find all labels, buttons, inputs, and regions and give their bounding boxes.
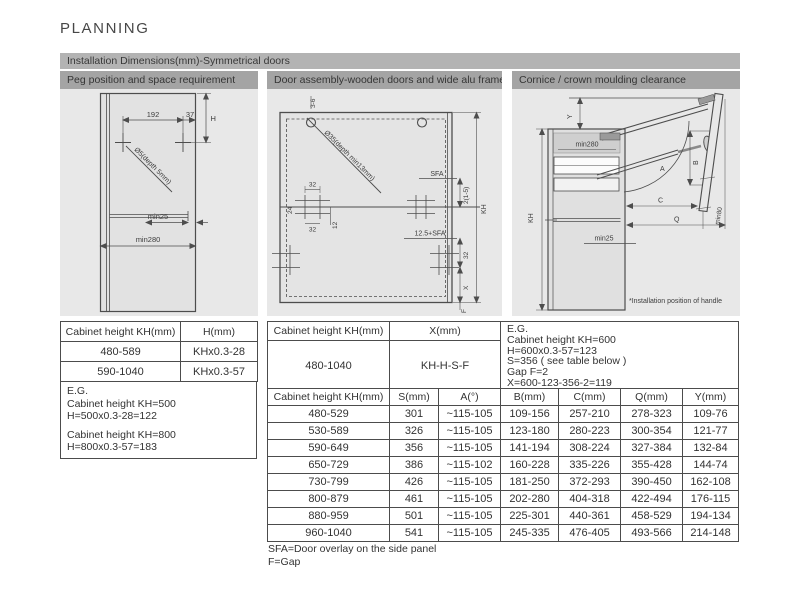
panel-header-door-assembly: Door assembly-wooden doors and wide alu … bbox=[267, 71, 502, 89]
table-header-row: Cabinet height KH(mm) H(mm) bbox=[61, 322, 258, 342]
side-panel-outline bbox=[101, 94, 196, 312]
cell: 160-228 bbox=[501, 457, 559, 474]
cell: 326 bbox=[390, 423, 439, 440]
table-row: 480-589 KHx0.3-28 bbox=[61, 342, 258, 362]
cell: 730-799 bbox=[268, 474, 390, 491]
cell: ~115-105 bbox=[439, 508, 501, 525]
dim-b-label: B bbox=[693, 160, 700, 165]
cell: 109-156 bbox=[501, 406, 559, 423]
dim-q-label: Q bbox=[674, 217, 680, 224]
cell: 355-428 bbox=[621, 457, 683, 474]
example-line: H=800x0.3-57=183 bbox=[67, 441, 250, 454]
cell: 257-210 bbox=[559, 406, 621, 423]
cell: 245-335 bbox=[501, 525, 559, 542]
dim-32-top-label: 32 bbox=[309, 182, 317, 189]
cell: 225-301 bbox=[501, 508, 559, 525]
cell: 480-589 bbox=[61, 342, 181, 362]
cell: 493-566 bbox=[621, 525, 683, 542]
cell: 372-293 bbox=[559, 474, 621, 491]
cell: 181-250 bbox=[501, 474, 559, 491]
col-header: S(mm) bbox=[390, 389, 439, 406]
cell: 141-194 bbox=[501, 440, 559, 457]
footnote-sfa: SFA=Door overlay on the side panel bbox=[268, 543, 436, 556]
dim-32-bottom-label: 32 bbox=[309, 227, 317, 234]
cell: 121-77 bbox=[683, 423, 739, 440]
x-example-cell: E.G. Cabinet height KH=600 H=600x0.3-57=… bbox=[501, 322, 739, 392]
dim-12-label: 12 bbox=[332, 221, 339, 229]
cell: 650-729 bbox=[268, 457, 390, 474]
dim-192-label: 192 bbox=[147, 110, 160, 119]
dim-c-label: C bbox=[658, 198, 663, 205]
panel-header-cornice: Cornice / crown moulding clearance bbox=[512, 71, 740, 89]
cell: 335-226 bbox=[559, 457, 621, 474]
dimension-table: Cabinet height KH(mm) S(mm) A(°) B(mm) C… bbox=[267, 388, 739, 542]
cell: 390-450 bbox=[621, 474, 683, 491]
footnote-f: F=Gap bbox=[268, 556, 436, 569]
col-header: X(mm) bbox=[390, 322, 501, 341]
cell: ~115-105 bbox=[439, 474, 501, 491]
diagram-peg-position: 192 37 H Ø5(depth 5mm) min25 min280 bbox=[60, 89, 258, 316]
dim-3-6-label: 3-6 bbox=[310, 98, 317, 108]
dim-f-label: F bbox=[461, 309, 468, 313]
table-header-row: Cabinet height KH(mm) X(mm) E.G. Cabinet… bbox=[268, 322, 739, 341]
cell: ~115-105 bbox=[439, 423, 501, 440]
page-title: PLANNING bbox=[60, 20, 150, 37]
manual-page: PLANNING Installation Dimensions(mm)-Sym… bbox=[0, 0, 800, 600]
section-banner: Installation Dimensions(mm)-Symmetrical … bbox=[60, 53, 740, 69]
cell: ~115-105 bbox=[439, 491, 501, 508]
example-line: Cabinet height KH=600 bbox=[507, 335, 732, 346]
dim-y-label: Y bbox=[567, 114, 574, 119]
cell: 426 bbox=[390, 474, 439, 491]
cell: 214-148 bbox=[683, 525, 739, 542]
min280-label: min280 bbox=[136, 235, 161, 244]
cell: ~115-105 bbox=[439, 406, 501, 423]
cell: 530-589 bbox=[268, 423, 390, 440]
kh-label: KH bbox=[528, 213, 535, 223]
table-row: 880-959 501 ~115-105 225-301 440-361 458… bbox=[268, 508, 739, 525]
cell: 440-361 bbox=[559, 508, 621, 525]
sfa-label: SFA bbox=[430, 171, 444, 178]
cell: 301 bbox=[390, 406, 439, 423]
example-line: Cabinet height KH=800 bbox=[67, 429, 250, 442]
x-formula-table: Cabinet height KH(mm) X(mm) E.G. Cabinet… bbox=[267, 321, 739, 392]
col-header: A(°) bbox=[439, 389, 501, 406]
diagram-cornice-clearance: Y min280 KH min25 A B C Q min80 *Install… bbox=[512, 89, 740, 316]
cell: 461 bbox=[390, 491, 439, 508]
table-row: 730-799 426 ~115-105 181-250 372-293 390… bbox=[268, 474, 739, 491]
door-assembly-drawing: 3-6 Ø35(depth min13mm) 32 32 24 12 SFA 2… bbox=[267, 89, 502, 316]
table-footnotes: SFA=Door overlay on the side panel F=Gap bbox=[268, 543, 436, 569]
cell: 541 bbox=[390, 525, 439, 542]
min280-label: min280 bbox=[576, 142, 599, 149]
cell: 880-959 bbox=[268, 508, 390, 525]
cell: KHx0.3-57 bbox=[181, 362, 258, 382]
cell: ~115-102 bbox=[439, 457, 501, 474]
cabinet-outline bbox=[548, 129, 625, 310]
cell: 590-649 bbox=[268, 440, 390, 457]
cell: 132-84 bbox=[683, 440, 739, 457]
cell: 202-280 bbox=[501, 491, 559, 508]
col-header: C(mm) bbox=[559, 389, 621, 406]
table-row: 650-729 386 ~115-102 160-228 335-226 355… bbox=[268, 457, 739, 474]
cell: 480-1040 bbox=[268, 340, 390, 391]
min80-label: min80 bbox=[714, 206, 724, 225]
col-header: H(mm) bbox=[181, 322, 258, 342]
table-row: 590-1040 KHx0.3-57 bbox=[61, 362, 258, 382]
dim-2-1-5-label: 2(1-5) bbox=[463, 187, 470, 204]
table-row: 530-589 326 ~115-105 123-180 280-223 300… bbox=[268, 423, 739, 440]
cell: 480-529 bbox=[268, 406, 390, 423]
col-header: Cabinet height KH(mm) bbox=[268, 389, 390, 406]
kh-label: KH bbox=[481, 204, 488, 214]
diagram-door-assembly: 3-6 Ø35(depth min13mm) 32 32 24 12 SFA 2… bbox=[267, 89, 502, 316]
example-line: E.G. bbox=[67, 385, 250, 398]
cell: 109-76 bbox=[683, 406, 739, 423]
cell: ~115-105 bbox=[439, 440, 501, 457]
cell: KHx0.3-28 bbox=[181, 342, 258, 362]
table-row: 480-529 301 ~115-105 109-156 257-210 278… bbox=[268, 406, 739, 423]
dim-x-label: X bbox=[463, 285, 470, 290]
table-row: 960-1040 541 ~115-105 245-335 476-405 49… bbox=[268, 525, 739, 542]
dim-24-label: 24 bbox=[287, 206, 294, 214]
table-row: 800-879 461 ~115-105 202-280 404-318 422… bbox=[268, 491, 739, 508]
cell: 960-1040 bbox=[268, 525, 390, 542]
cell: 300-354 bbox=[621, 423, 683, 440]
cell: KH-H-S-F bbox=[390, 340, 501, 391]
cell: 800-879 bbox=[268, 491, 390, 508]
table-header-row: Cabinet height KH(mm) S(mm) A(°) B(mm) C… bbox=[268, 389, 739, 406]
cell: 278-323 bbox=[621, 406, 683, 423]
dim-37-label: 37 bbox=[186, 110, 194, 119]
cell: 162-108 bbox=[683, 474, 739, 491]
cell: 501 bbox=[390, 508, 439, 525]
cell: 356 bbox=[390, 440, 439, 457]
example-line: Cabinet height KH=500 bbox=[67, 398, 250, 411]
handle-position-note: *Installation position of handle bbox=[629, 298, 722, 305]
min25-label: min25 bbox=[594, 236, 613, 243]
h-example-box: E.G. Cabinet height KH=500 H=500x0.3-28=… bbox=[60, 381, 257, 459]
cell: 123-180 bbox=[501, 423, 559, 440]
min25-label: min25 bbox=[148, 212, 168, 221]
cell: 308-224 bbox=[559, 440, 621, 457]
col-header: Cabinet height KH(mm) bbox=[61, 322, 181, 342]
dim-h-label: H bbox=[211, 114, 216, 123]
cell: 590-1040 bbox=[61, 362, 181, 382]
cell: 176-115 bbox=[683, 491, 739, 508]
dim-125-sfa-label: 12.5+SFA bbox=[415, 231, 446, 238]
cell: 194-134 bbox=[683, 508, 739, 525]
col-header: Cabinet height KH(mm) bbox=[268, 322, 390, 341]
cell: 458-529 bbox=[621, 508, 683, 525]
cell: 476-405 bbox=[559, 525, 621, 542]
col-header: B(mm) bbox=[501, 389, 559, 406]
h-formula-table: Cabinet height KH(mm) H(mm) 480-589 KHx0… bbox=[60, 321, 258, 382]
example-line: H=500x0.3-28=122 bbox=[67, 410, 250, 423]
cell: 280-223 bbox=[559, 423, 621, 440]
cell: 386 bbox=[390, 457, 439, 474]
cell: 327-384 bbox=[621, 440, 683, 457]
cell: 422-494 bbox=[621, 491, 683, 508]
cell: ~115-105 bbox=[439, 525, 501, 542]
table-row: 590-649 356 ~115-105 141-194 308-224 327… bbox=[268, 440, 739, 457]
peg-position-drawing: 192 37 H Ø5(depth 5mm) min25 min280 bbox=[60, 89, 258, 316]
col-header: Q(mm) bbox=[621, 389, 683, 406]
cell: 404-318 bbox=[559, 491, 621, 508]
dim-32-right-label: 32 bbox=[463, 251, 470, 259]
cornice-clearance-drawing: Y min280 KH min25 A B C Q min80 *Install… bbox=[512, 89, 740, 316]
panel-header-peg-position: Peg position and space requirement bbox=[60, 71, 258, 89]
dim-a-label: A bbox=[660, 166, 665, 173]
cell: 144-74 bbox=[683, 457, 739, 474]
col-header: Y(mm) bbox=[683, 389, 739, 406]
